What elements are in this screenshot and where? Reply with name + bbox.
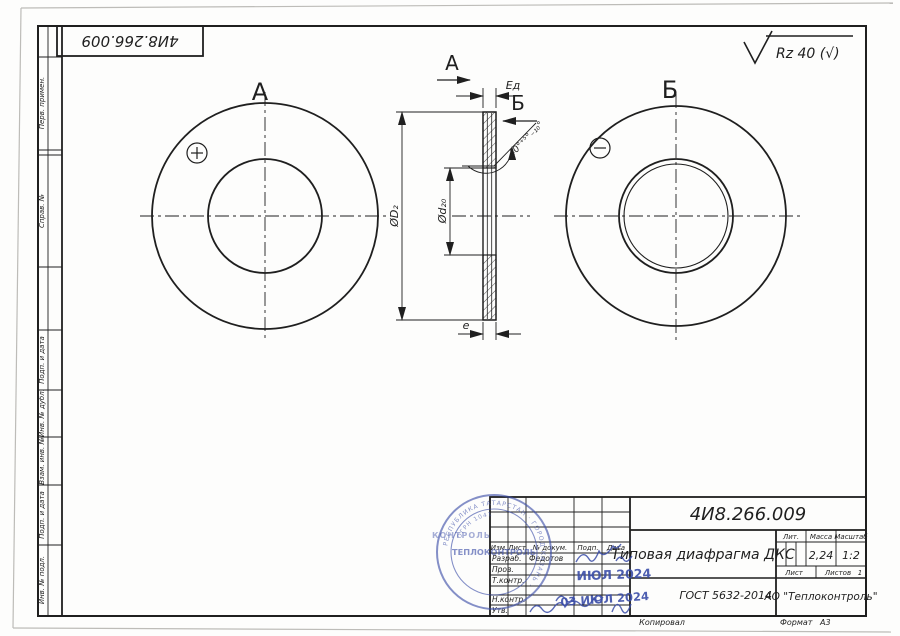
seal-center-text: ТЕПЛОКОНТРОЛЬ bbox=[452, 547, 536, 557]
date-stamp-1: ИЮЛ 2024 bbox=[576, 566, 651, 584]
designation: 4И8.266.009 bbox=[690, 504, 807, 525]
margin-label-sprav-no: Справ. № bbox=[38, 194, 46, 228]
dim-edge: e bbox=[458, 319, 521, 340]
top-designation-text: 4И8.266.009 bbox=[81, 32, 178, 50]
hdr-sheet: Лист bbox=[784, 569, 804, 577]
view-arrow-a: А bbox=[437, 51, 470, 80]
dim-bore: Ød₂₀ bbox=[436, 168, 483, 255]
roughness-mark: Rz 40 (√) bbox=[744, 31, 853, 63]
margin-label-podp-data-2: Подп. и дата bbox=[38, 491, 46, 539]
dim-edge-label: e bbox=[463, 319, 470, 332]
standard: ГОСТ 5632-2014 bbox=[679, 589, 772, 602]
dim-angle-label: 40°⁺⁵°₋₁₀° bbox=[507, 120, 546, 160]
date-stamp-2: 03 ИЮЛ 2024 bbox=[560, 589, 649, 609]
dim-angle: 40°⁺⁵°₋₁₀° bbox=[462, 120, 546, 173]
margin-label-inv-dubl: Инв. № дубл. bbox=[38, 389, 46, 437]
val-mass: 2,24 bbox=[809, 549, 834, 562]
hdr-lit: Лит. bbox=[782, 533, 799, 541]
footer-format-label: Формат bbox=[780, 618, 813, 627]
margin-labels: Перв. примен. Справ. № Подп. и дата Инв.… bbox=[38, 77, 46, 604]
hdr-sheets: Листов bbox=[824, 569, 851, 577]
minus-marker bbox=[590, 138, 610, 158]
hdr-mass: Масса bbox=[810, 533, 832, 541]
plus-marker bbox=[187, 143, 207, 163]
view-arrow-b-label: Б bbox=[511, 91, 525, 115]
hdr-scale: Масштаб bbox=[834, 533, 868, 541]
top-designation-stamp: 4И8.266.009 bbox=[57, 26, 203, 56]
val-scale: 1:2 bbox=[842, 549, 860, 562]
col-sign: Подп. bbox=[577, 544, 598, 552]
footer-copied: Копировал bbox=[639, 618, 685, 627]
drawing-canvas: Перв. примен. Справ. № Подп. и дата Инв.… bbox=[0, 0, 900, 636]
val-sheets-count: 1 bbox=[858, 569, 862, 577]
view-a: А bbox=[140, 78, 392, 342]
title-block: 4И8.266.009 Типовая диафрагма ДКС ГОСТ 5… bbox=[490, 497, 878, 627]
margin-label-vzam-inv: Взам. инв. № bbox=[38, 437, 46, 485]
section-view: А Б Ед 40°⁺⁵°₋₁₀° ØD₂ bbox=[388, 51, 546, 340]
margin-label-inv-podl: Инв. № подл. bbox=[38, 556, 46, 604]
part-title: Типовая диафрагма ДКС bbox=[611, 547, 795, 563]
view-a-label: А bbox=[252, 78, 269, 106]
drawing-sheet: Перв. примен. Справ. № Подп. и дата Инв.… bbox=[0, 0, 900, 636]
dim-outer-label: ØD₂ bbox=[388, 205, 401, 228]
role-tkontr: Т.контр. bbox=[492, 576, 525, 585]
view-b: Б bbox=[554, 76, 800, 342]
dim-bore-label: Ød₂₀ bbox=[436, 198, 449, 224]
margin-label-podp-data-1: Подп. и дата bbox=[38, 336, 46, 384]
roughness-text: Rz 40 (√) bbox=[776, 46, 840, 62]
role-prov: Пров. bbox=[492, 565, 514, 574]
view-arrow-a-label: А bbox=[445, 51, 459, 75]
footer-format-value: А3 bbox=[819, 618, 831, 627]
margin-label-perv-primen: Перв. примен. bbox=[38, 77, 46, 130]
company: АО "Теплоконтроль" bbox=[763, 591, 877, 603]
section-hatch-top bbox=[483, 112, 496, 168]
section-hatch-bottom bbox=[483, 255, 496, 320]
view-arrow-b: Б bbox=[503, 91, 537, 121]
side-stamp-text: КОНТРОЛЬ bbox=[432, 531, 491, 540]
dim-thickness-label: Ед bbox=[506, 79, 521, 92]
